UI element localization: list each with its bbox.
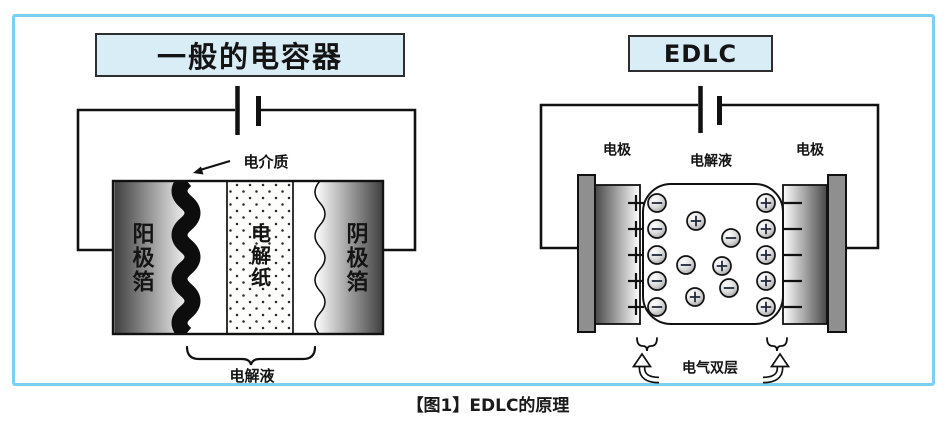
positive-ion <box>757 298 775 316</box>
double-layer-arrow-left <box>634 354 660 380</box>
negative-ion <box>648 246 666 264</box>
positive-ion <box>713 257 731 275</box>
negative-ion <box>722 229 740 247</box>
positive-ion <box>757 194 775 212</box>
double-layer-brace-right <box>767 338 787 351</box>
current-collector-left <box>578 175 595 332</box>
electrode-right-label: 电极 <box>796 144 824 159</box>
positive-ion <box>757 220 775 238</box>
dielectric-arrow-head <box>193 167 204 175</box>
dielectric-label: 电介质 <box>243 155 288 171</box>
positive-ion <box>687 212 705 230</box>
double-layer-brace-left <box>637 338 657 351</box>
electrode-left-label: 电极 <box>603 144 631 159</box>
edlc-diagram <box>541 86 878 380</box>
title-generic-capacitor: 一般的电容器 <box>95 33 405 77</box>
electrolyte-label-left-diagram: 电解液 <box>229 369 274 385</box>
title-edlc: EDLC <box>628 35 773 72</box>
negative-ion <box>677 256 695 274</box>
positive-ion <box>757 272 775 290</box>
double-layer-arrow-right <box>763 354 789 380</box>
anode-foil-label: 阳极箔 <box>129 222 152 294</box>
separator-paper-label: 电解纸 <box>249 223 270 289</box>
negative-ion <box>648 298 666 316</box>
positive-ion <box>686 288 704 306</box>
double-layer-label: 电气双层 <box>682 362 738 377</box>
negative-ion <box>720 279 738 297</box>
cathode-foil-label: 阴极箔 <box>343 222 366 294</box>
positive-ion <box>757 246 775 264</box>
electrolyte-label-edlc: 电解液 <box>690 155 732 170</box>
edlc-principle-figure: 一般的电容器 EDLC 电介质 阳极箔 电解纸 阴极箔 电解液 电极 电解液 电… <box>0 0 949 426</box>
negative-ion <box>648 194 666 212</box>
figure-caption: 【图1】EDLC的原理 <box>407 391 570 416</box>
dielectric-arrow-line <box>200 161 230 170</box>
negative-ion <box>648 220 666 238</box>
negative-ion <box>648 272 666 290</box>
electrolyte-brace <box>187 347 315 365</box>
current-collector-right <box>828 175 846 332</box>
